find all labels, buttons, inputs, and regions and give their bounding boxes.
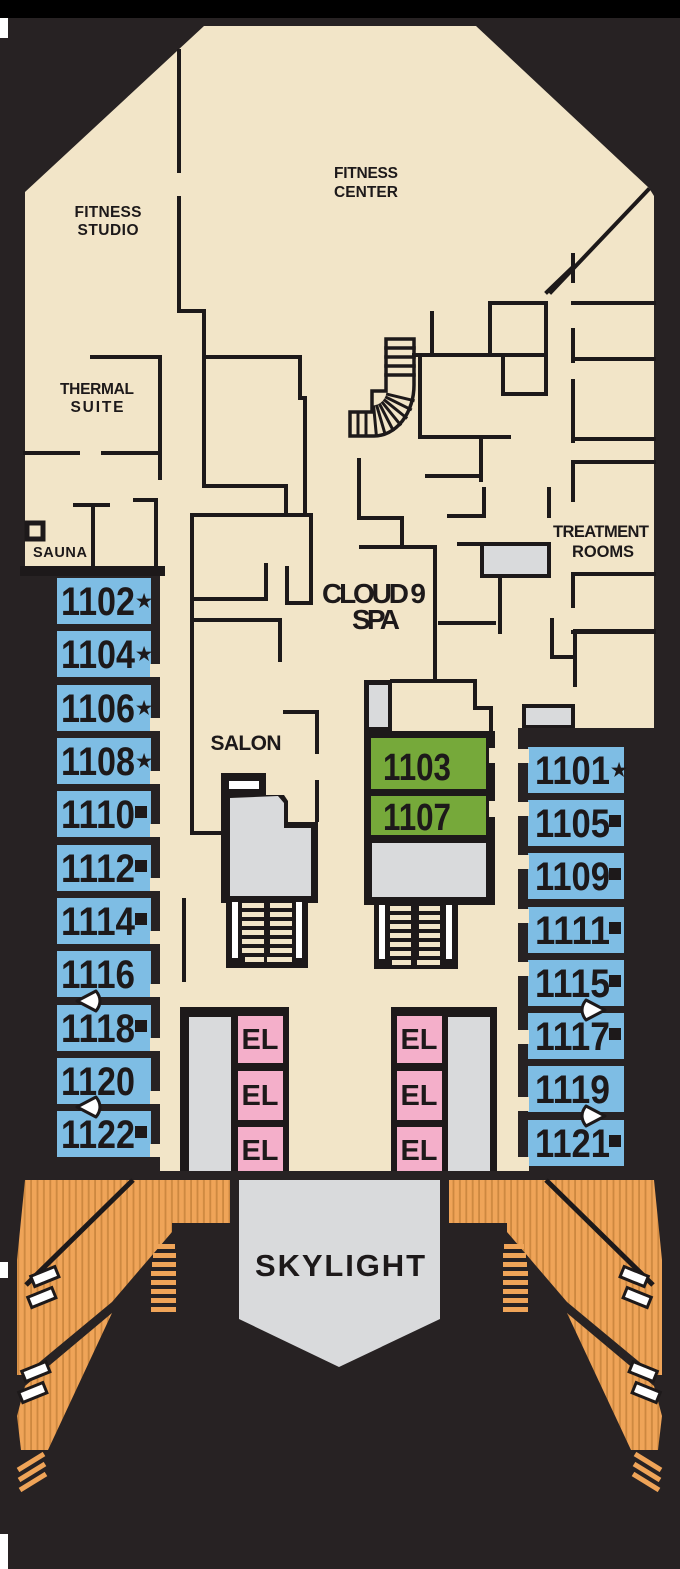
svg-text:1101: 1101 xyxy=(535,749,610,793)
svg-text:1121: 1121 xyxy=(535,1122,610,1166)
svg-text:★: ★ xyxy=(136,644,153,664)
svg-text:★: ★ xyxy=(611,760,628,780)
svg-text:1105: 1105 xyxy=(535,802,610,846)
svg-text:EL: EL xyxy=(241,1024,278,1056)
svg-text:EL: EL xyxy=(400,1135,437,1167)
svg-text:1119: 1119 xyxy=(535,1068,610,1112)
svg-text:1110: 1110 xyxy=(61,793,135,837)
svg-text:1109: 1109 xyxy=(535,855,610,899)
svg-text:1106: 1106 xyxy=(61,687,135,731)
svg-text:ROOMS: ROOMS xyxy=(572,543,634,561)
svg-text:1107: 1107 xyxy=(383,797,451,839)
svg-text:★: ★ xyxy=(136,698,153,718)
svg-text:SPA: SPA xyxy=(352,604,400,635)
svg-text:SKYLIGHT: SKYLIGHT xyxy=(255,1248,425,1283)
svg-text:EL: EL xyxy=(400,1024,437,1056)
svg-text:EL: EL xyxy=(241,1135,278,1167)
svg-text:★: ★ xyxy=(136,591,153,611)
svg-text:1115: 1115 xyxy=(535,962,610,1006)
svg-text:FITNESS: FITNESS xyxy=(334,165,398,182)
svg-text:SALON: SALON xyxy=(211,732,282,755)
svg-text:FITNESS: FITNESS xyxy=(75,204,142,221)
svg-text:1108: 1108 xyxy=(61,740,135,784)
svg-text:1116: 1116 xyxy=(61,953,135,997)
svg-text:1122: 1122 xyxy=(61,1113,135,1157)
svg-text:CENTER: CENTER xyxy=(334,184,398,201)
svg-text:STUDIO: STUDIO xyxy=(78,222,139,239)
svg-text:EL: EL xyxy=(400,1080,437,1112)
svg-text:1117: 1117 xyxy=(535,1015,610,1059)
svg-text:1103: 1103 xyxy=(383,747,451,789)
svg-text:1102: 1102 xyxy=(61,580,135,624)
svg-text:TREATMENT: TREATMENT xyxy=(553,523,649,541)
svg-text:SAUNA: SAUNA xyxy=(33,545,88,561)
svg-text:EL: EL xyxy=(241,1080,278,1112)
svg-text:1118: 1118 xyxy=(61,1007,135,1051)
svg-text:1114: 1114 xyxy=(61,900,136,944)
svg-text:1104: 1104 xyxy=(61,633,136,677)
svg-text:★: ★ xyxy=(136,751,153,771)
svg-text:1111: 1111 xyxy=(535,909,610,953)
svg-text:THERMAL: THERMAL xyxy=(60,381,134,398)
svg-text:1112: 1112 xyxy=(61,847,135,891)
svg-text:SUITE: SUITE xyxy=(71,399,124,416)
